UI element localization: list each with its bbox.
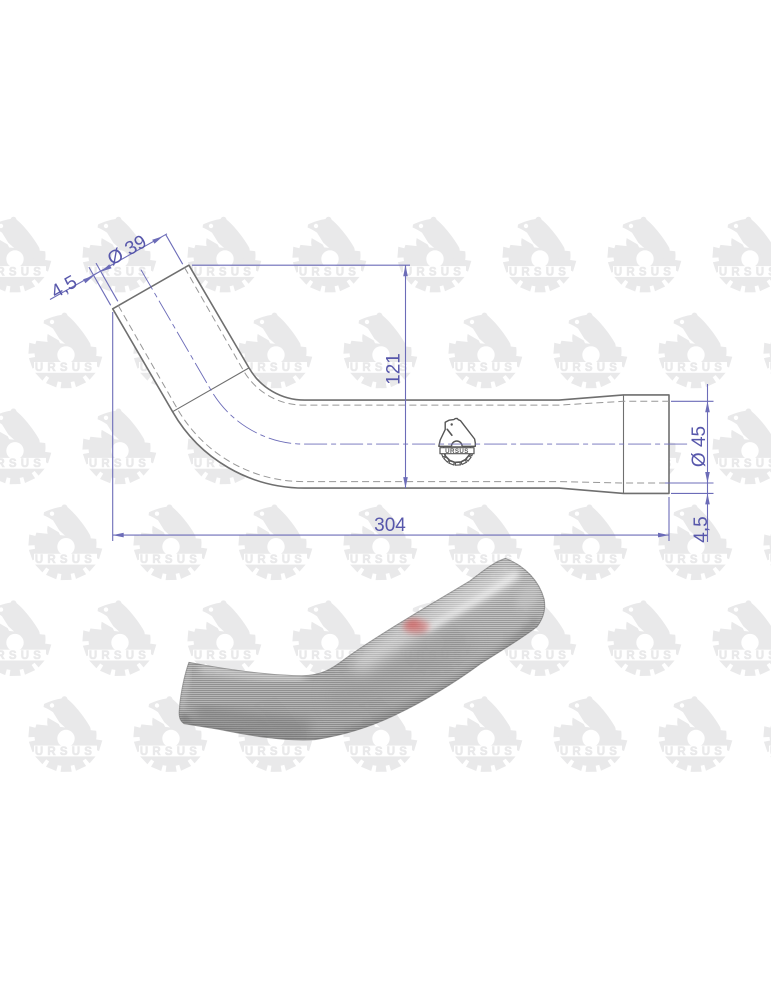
svg-text:Ø 45: Ø 45 [689, 426, 710, 467]
svg-text:304: 304 [374, 515, 406, 536]
svg-text:121: 121 [384, 353, 405, 385]
svg-text:URSUS: URSUS [445, 448, 469, 455]
svg-text:4,5: 4,5 [691, 516, 712, 542]
